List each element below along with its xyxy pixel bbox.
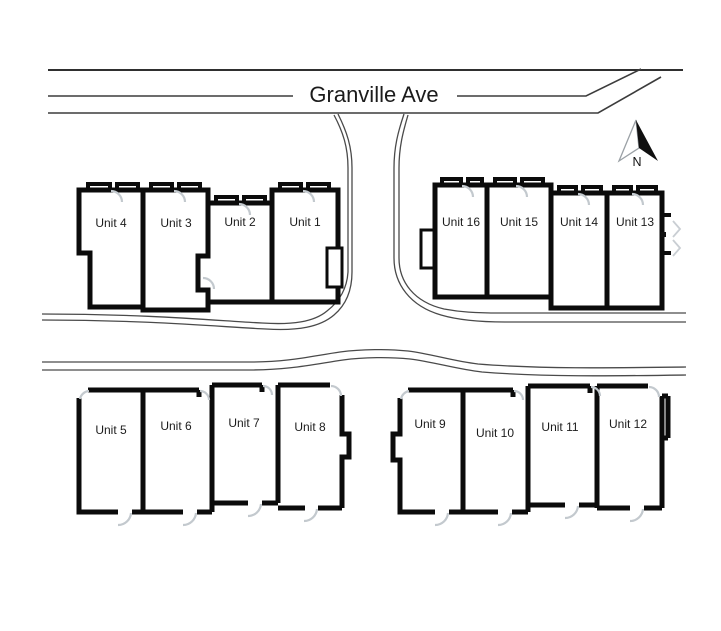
unit-4-label: Unit 4 <box>95 216 127 230</box>
unit-6-outline <box>143 385 212 512</box>
unit-5-outline <box>79 390 143 512</box>
lane-south-upper <box>42 350 686 368</box>
unit-14-outline <box>551 193 607 308</box>
unit-5-label: Unit 5 <box>95 423 127 437</box>
unit-7-outline <box>212 385 278 503</box>
unit-12-label: Unit 12 <box>609 417 647 431</box>
unit-5-rear-door-swing-arc <box>118 513 131 525</box>
unit-10-label: Unit 10 <box>476 426 514 440</box>
unit-12-outline <box>597 386 668 508</box>
unit-15-label: Unit 15 <box>500 215 538 229</box>
unit-14-label: Unit 14 <box>560 215 598 229</box>
block-north-west: Unit 4 Unit 3 Unit 2 Unit 1 <box>79 184 342 310</box>
unit-9-outline <box>393 390 463 512</box>
unit-11-outline <box>528 386 597 505</box>
unit-13-outline <box>607 193 662 308</box>
unit-13-side-door-swing <box>673 221 680 256</box>
unit-8-outline <box>278 385 349 508</box>
street-centerline-east <box>457 69 641 96</box>
lane-south-lower <box>42 358 686 376</box>
unit-9-label: Unit 9 <box>414 417 446 431</box>
unit-8-label: Unit 8 <box>294 420 326 434</box>
unit-11-label: Unit 11 <box>541 420 578 434</box>
unit-16-label: Unit 16 <box>442 215 480 229</box>
unit-15-outline <box>487 185 551 297</box>
unit-7-rear-door-swing-arc <box>248 504 261 516</box>
site-plan-canvas: Granville Ave N Unit 4 Unit 3 Unit 2 Uni <box>0 0 721 631</box>
unit-3-label: Unit 3 <box>160 216 192 230</box>
north-label: N <box>632 155 641 169</box>
unit-9-rear-door-swing-arc <box>435 513 448 525</box>
unit-10-outline <box>463 386 528 512</box>
unit-5-entry-swing-arc <box>80 391 89 399</box>
unit-8-entry-swing-arc <box>331 386 341 396</box>
block-south-west: Unit 5 Unit 6 Unit 7 Unit 8 <box>79 385 349 525</box>
unit-7-label: Unit 7 <box>228 416 260 430</box>
unit-16-outline <box>435 185 487 297</box>
unit-13-side-door-hinge <box>661 232 666 237</box>
unit-4-outline <box>79 190 143 307</box>
unit-1-label: Unit 1 <box>289 215 321 229</box>
unit-13-label: Unit 13 <box>616 215 654 229</box>
street-granville: Granville Ave <box>48 69 683 113</box>
unit-6-label: Unit 6 <box>160 419 192 433</box>
block-south-east: Unit 9 Unit 10 Unit 11 Unit 12 <box>393 386 668 525</box>
unit-6-rear-door-swing-arc <box>183 513 196 525</box>
unit-1-side-annex <box>327 248 342 287</box>
street-name-label: Granville Ave <box>309 82 438 107</box>
site-plan: Granville Ave N Unit 4 Unit 3 Unit 2 Uni <box>0 0 721 631</box>
north-arrow: N <box>619 120 658 169</box>
block-north-east: Unit 16 Unit 15 Unit 14 Unit 13 <box>421 179 680 308</box>
unit-11-rear-door-swing-arc <box>565 506 578 518</box>
unit-9-entry-swing-arc <box>401 391 409 399</box>
unit-8-rear-door-swing-arc <box>304 509 317 521</box>
unit-12-entry-swing-arc <box>649 387 659 397</box>
unit-10-rear-door-swing-arc <box>498 513 511 525</box>
unit-12-rear-door-swing-arc <box>630 509 643 521</box>
unit-2-label: Unit 2 <box>224 215 256 229</box>
